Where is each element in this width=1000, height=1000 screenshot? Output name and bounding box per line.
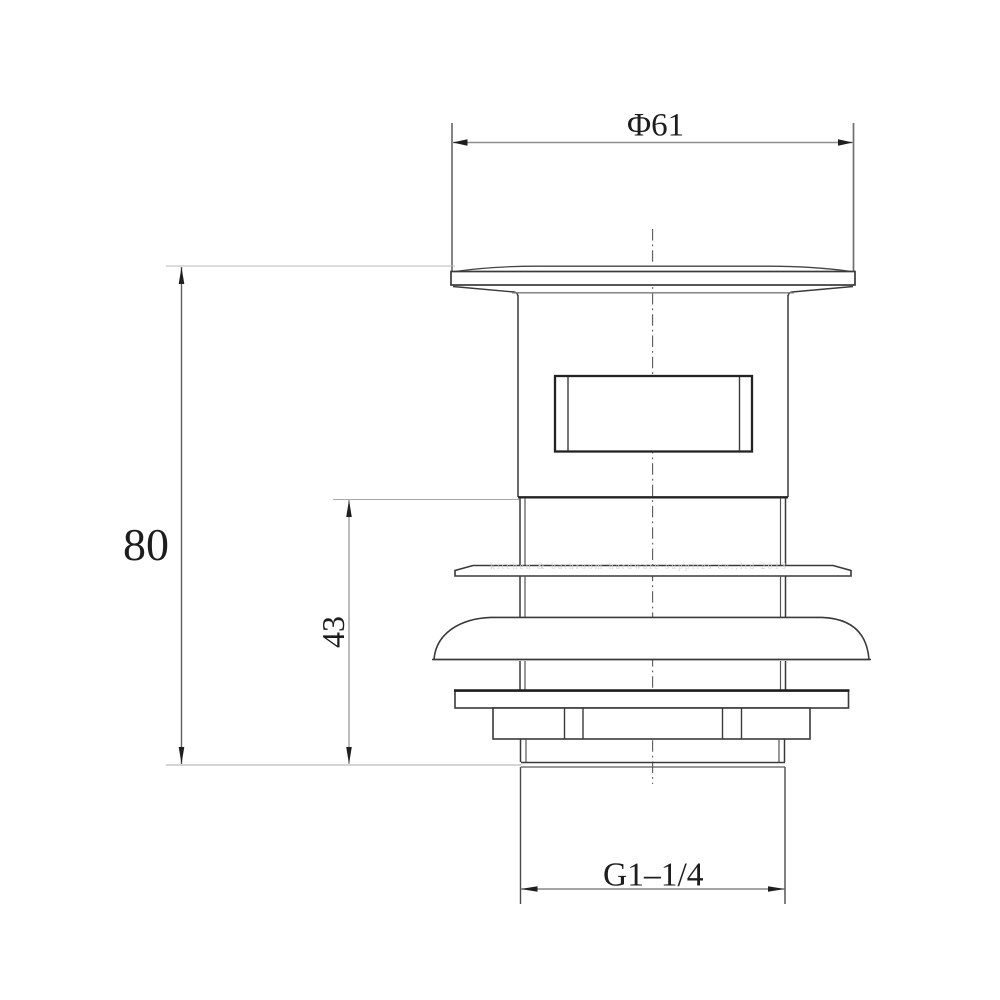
svg-text:kitchen & bathroom hardware su: kitchen & bathroom hardware supplies co.… <box>490 562 788 572</box>
svg-text:Φ61: Φ61 <box>627 108 684 144</box>
svg-text:G1–1/4: G1–1/4 <box>603 857 704 894</box>
svg-text:80: 80 <box>123 519 169 570</box>
svg-text:43: 43 <box>315 616 351 648</box>
